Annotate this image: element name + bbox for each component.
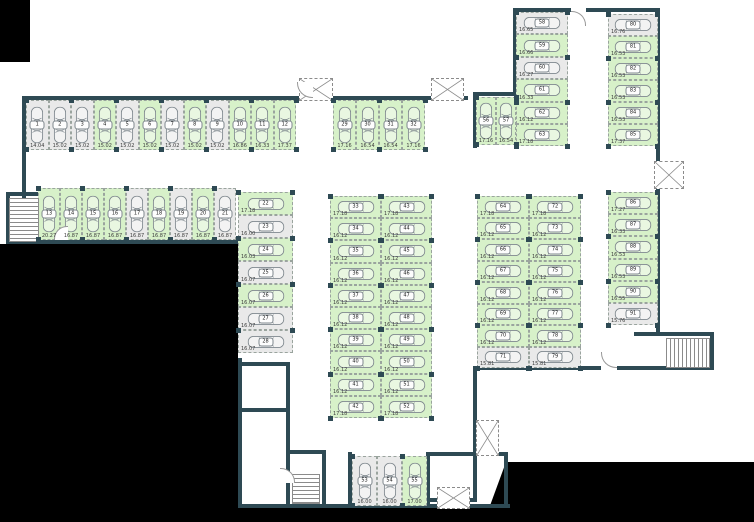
parking-space-25[interactable]: 25 16.07 (238, 261, 293, 284)
space-area: 16.12 (333, 278, 347, 284)
space-area: 16.12 (532, 318, 546, 324)
space-number: 76 (548, 288, 563, 297)
column-pillar (159, 147, 164, 152)
space-number: 62 (535, 108, 550, 117)
column-pillar (400, 454, 405, 459)
space-number: 80 (626, 21, 641, 30)
parking-space-72[interactable]: 72 17.18 (529, 196, 581, 218)
space-area: 16.12 (519, 117, 533, 123)
parking-space-47[interactable]: 47 16.12 (381, 285, 432, 307)
space-area: 15.02 (162, 143, 183, 149)
parking-space-2[interactable]: 2 15.02 (49, 100, 72, 150)
parking-space-71[interactable]: 71 15.81 (477, 347, 529, 369)
parking-space-52[interactable]: 52 17.18 (381, 396, 432, 418)
parking-space-37[interactable]: 37 16.12 (330, 285, 381, 307)
parking-space-87[interactable]: 87 16.33 (608, 214, 658, 236)
space-number: 9 (210, 121, 225, 130)
parking-space-83[interactable]: 83 16.53 (608, 80, 658, 102)
space-number: 51 (399, 380, 414, 389)
space-number: 27 (258, 314, 273, 323)
space-area: 16.00 (353, 499, 376, 505)
wall (586, 8, 660, 12)
door-arc (280, 468, 295, 483)
column-pillar (377, 147, 382, 152)
space-number: 6 (142, 121, 157, 130)
door-arc (571, 11, 586, 26)
space-area: 17.16 (334, 143, 355, 149)
column-pillar (474, 142, 479, 147)
void-area (484, 462, 754, 522)
parking-space-38[interactable]: 38 16.12 (330, 307, 381, 329)
space-number: 15 (86, 210, 101, 219)
space-number: 32 (406, 121, 421, 130)
space-area: 17.18 (384, 211, 398, 217)
parking-space-35[interactable]: 35 16.12 (330, 240, 381, 262)
space-area: 16.53 (611, 117, 625, 123)
space-area: 16.12 (333, 344, 347, 350)
column-pillar (212, 186, 217, 191)
parking-space-1[interactable]: 1 14.04 (26, 100, 49, 150)
space-number: 18 (152, 210, 167, 219)
space-number: 66 (496, 245, 511, 254)
parking-space-20[interactable]: 20 16.87 (192, 188, 214, 240)
space-area: 16.12 (384, 233, 398, 239)
space-number: 46 (399, 269, 414, 278)
parking-space-31[interactable]: 31 16.54 (379, 100, 402, 150)
parking-space-22[interactable]: 22 17.18 (238, 192, 293, 215)
parking-space-89[interactable]: 89 16.53 (608, 259, 658, 281)
space-number: 20 (196, 210, 211, 219)
space-area: 16.12 (532, 254, 546, 260)
space-number: 33 (348, 203, 363, 212)
space-number: 23 (258, 222, 273, 231)
parking-space-4[interactable]: 4 15.02 (94, 100, 117, 150)
space-area: 16.87 (83, 233, 103, 239)
column-pillar (69, 147, 74, 152)
column-pillar (328, 372, 333, 377)
parking-space-78[interactable]: 78 16.12 (529, 325, 581, 347)
column-pillar (36, 186, 41, 191)
space-number: 65 (496, 224, 511, 233)
space-number: 58 (535, 19, 550, 28)
column-pillar (379, 238, 384, 243)
space-number: 70 (496, 331, 511, 340)
column-pillar (429, 327, 434, 332)
parking-space-28[interactable]: 28 16.07 (238, 330, 293, 353)
space-area: 16.53 (611, 51, 625, 57)
stairs-icon (666, 338, 710, 368)
space-area: 17.18 (384, 411, 398, 417)
parking-space-49[interactable]: 49 16.12 (381, 329, 432, 351)
parking-space-12[interactable]: 12 17.37 (274, 100, 297, 150)
column-pillar (159, 98, 164, 103)
space-number: 48 (399, 314, 414, 323)
column-pillar (290, 236, 295, 241)
column-pillar (377, 98, 382, 103)
parking-space-46[interactable]: 46 16.12 (381, 263, 432, 285)
column-pillar (475, 280, 480, 285)
space-number: 50 (399, 358, 414, 367)
space-number: 87 (626, 221, 641, 230)
space-area: 16.27 (519, 72, 533, 78)
parking-space-36[interactable]: 36 16.12 (330, 263, 381, 285)
column-pillar (124, 237, 129, 242)
column-pillar (429, 194, 434, 199)
space-area: 16.87 (171, 233, 191, 239)
column-pillar (204, 147, 209, 152)
space-area: 16.12 (333, 256, 347, 262)
door-arc (601, 352, 617, 368)
space-area: 16.54 (497, 138, 515, 144)
parking-space-41[interactable]: 41 16.12 (330, 374, 381, 396)
space-number: 82 (626, 65, 641, 74)
parking-space-14[interactable]: 14 16.87 (60, 188, 82, 240)
column-pillar (236, 190, 241, 195)
parking-space-53[interactable]: 53 16.00 (352, 456, 377, 506)
column-pillar (331, 147, 336, 152)
shaft-symbol (476, 420, 499, 456)
space-area: 16.12 (532, 340, 546, 346)
space-area: 15.02 (140, 143, 161, 149)
space-area: 17.16 (477, 138, 495, 144)
column-pillar (236, 236, 241, 241)
parking-space-84[interactable]: 84 16.53 (608, 102, 658, 124)
column-pillar (578, 280, 583, 285)
column-pillar (606, 12, 611, 17)
parking-space-32[interactable]: 32 17.16 (402, 100, 425, 150)
parking-space-79[interactable]: 79 15.81 (529, 347, 581, 369)
space-number: 41 (348, 380, 363, 389)
column-pillar (527, 366, 532, 371)
column-pillar (379, 194, 384, 199)
column-pillar (168, 237, 173, 242)
column-pillar (124, 186, 129, 191)
space-area: 16.54 (380, 143, 401, 149)
parking-space-62[interactable]: 62 16.12 (516, 102, 568, 124)
space-area: 14.04 (27, 143, 48, 149)
column-pillar (290, 282, 295, 287)
space-area: 16.76 (611, 29, 625, 35)
parking-space-17[interactable]: 17 16.87 (126, 188, 148, 240)
column-pillar (249, 98, 254, 103)
parking-space-81[interactable]: 81 16.53 (608, 36, 658, 58)
column-pillar (69, 98, 74, 103)
space-number: 45 (399, 247, 414, 256)
space-number: 59 (535, 41, 550, 50)
column-pillar (527, 280, 532, 285)
space-area: 16.12 (333, 322, 347, 328)
wall (504, 452, 508, 506)
space-number: 22 (258, 199, 273, 208)
space-area: 17.16 (403, 143, 424, 149)
parking-space-51[interactable]: 51 16.12 (381, 374, 432, 396)
parking-space-80[interactable]: 80 16.76 (608, 14, 658, 36)
parking-space-43[interactable]: 43 17.18 (381, 196, 432, 218)
parking-space-7[interactable]: 7 15.02 (161, 100, 184, 150)
parking-space-61[interactable]: 61 16.33 (516, 79, 568, 101)
space-area: 16.12 (384, 389, 398, 395)
parking-space-5[interactable]: 5 15.02 (116, 100, 139, 150)
space-number: 71 (496, 353, 511, 362)
column-pillar (236, 282, 241, 287)
parking-space-42[interactable]: 42 17.18 (330, 396, 381, 418)
column-pillar (655, 100, 660, 105)
space-number: 28 (258, 337, 273, 346)
space-number: 19 (174, 210, 189, 219)
parking-space-39[interactable]: 39 16.12 (330, 329, 381, 351)
parking-space-27[interactable]: 27 16.07 (238, 307, 293, 330)
parking-space-19[interactable]: 19 16.87 (170, 188, 192, 240)
parking-space-66[interactable]: 66 16.12 (477, 239, 529, 261)
space-area: 16.87 (61, 233, 81, 239)
parking-space-6[interactable]: 6 15.02 (139, 100, 162, 150)
space-area: 16.07 (241, 277, 255, 283)
floor-plan: 1 14.04 2 15.02 3 15.02 4 15.02 5 15.02 … (0, 0, 754, 522)
space-area: 16.00 (241, 231, 255, 237)
wall (583, 366, 601, 370)
parking-space-90[interactable]: 90 16.55 (608, 281, 658, 303)
parking-space-15[interactable]: 15 16.87 (82, 188, 104, 240)
space-number: 30 (360, 121, 375, 130)
space-number: 47 (399, 291, 414, 300)
space-area: 16.87 (215, 233, 235, 239)
space-number: 69 (496, 310, 511, 319)
parking-space-68[interactable]: 68 16.12 (477, 282, 529, 304)
space-number: 26 (258, 291, 273, 300)
parking-space-75[interactable]: 75 16.12 (529, 261, 581, 283)
column-pillar (565, 100, 570, 105)
space-number: 7 (165, 121, 180, 130)
column-pillar (294, 147, 299, 152)
parking-space-56[interactable]: 56 17.16 (476, 97, 496, 145)
parking-space-45[interactable]: 45 16.12 (381, 240, 432, 262)
column-pillar (114, 147, 119, 152)
stairs-icon (9, 198, 39, 242)
space-number: 81 (626, 43, 641, 52)
space-number: 64 (496, 202, 511, 211)
column-pillar (474, 95, 479, 100)
parking-space-3[interactable]: 3 15.02 (71, 100, 94, 150)
column-pillar (514, 100, 519, 105)
space-number: 24 (258, 245, 273, 254)
shaft-symbol (431, 78, 464, 101)
column-pillar (514, 55, 519, 60)
space-area: 15.81 (480, 361, 494, 367)
parking-space-48[interactable]: 48 16.12 (381, 307, 432, 329)
parking-space-85[interactable]: 85 17.37 (608, 124, 658, 146)
space-area: 16.54 (357, 143, 378, 149)
column-pillar (527, 237, 532, 242)
column-pillar (328, 416, 333, 421)
column-pillar (514, 10, 519, 15)
parking-space-73[interactable]: 73 16.12 (529, 218, 581, 240)
parking-space-60[interactable]: 60 16.27 (516, 57, 568, 79)
parking-space-10[interactable]: 10 16.86 (229, 100, 252, 150)
parking-space-69[interactable]: 69 16.12 (477, 304, 529, 326)
space-number: 75 (548, 267, 563, 276)
parking-space-18[interactable]: 18 16.87 (148, 188, 170, 240)
parking-space-88[interactable]: 88 16.53 (608, 236, 658, 258)
parking-space-30[interactable]: 30 16.54 (356, 100, 379, 150)
column-pillar (578, 323, 583, 328)
space-number: 89 (626, 265, 641, 274)
column-pillar (655, 56, 660, 61)
parking-space-50[interactable]: 50 16.12 (381, 351, 432, 373)
space-number: 2 (52, 121, 67, 130)
space-area: 15.76 (611, 318, 625, 324)
column-pillar (331, 98, 336, 103)
parking-space-59[interactable]: 59 16.66 (516, 34, 568, 56)
parking-space-77[interactable]: 77 16.12 (529, 304, 581, 326)
space-area: 16.03 (241, 254, 255, 260)
space-number: 54 (382, 477, 397, 486)
space-area: 17.18 (333, 211, 347, 217)
parking-space-91[interactable]: 91 15.76 (608, 303, 658, 325)
parking-space-11[interactable]: 11 16.33 (251, 100, 274, 150)
space-number: 5 (120, 121, 135, 130)
space-area: 16.00 (378, 499, 401, 505)
column-pillar (606, 234, 611, 239)
column-pillar (606, 144, 611, 149)
space-number: 16 (108, 210, 123, 219)
column-pillar (423, 98, 428, 103)
space-number: 57 (499, 117, 514, 126)
space-area: 16.53 (611, 252, 625, 258)
space-area: 16.87 (127, 233, 147, 239)
space-number: 61 (535, 86, 550, 95)
stairs-icon (292, 474, 320, 504)
space-number: 49 (399, 336, 414, 345)
parking-space-29[interactable]: 29 17.16 (333, 100, 356, 150)
column-pillar (290, 328, 295, 333)
parking-space-33[interactable]: 33 17.18 (330, 196, 381, 218)
space-number: 14 (64, 210, 79, 219)
parking-space-67[interactable]: 67 16.12 (477, 261, 529, 283)
parking-space-54[interactable]: 54 16.00 (377, 456, 402, 506)
parking-space-40[interactable]: 40 16.12 (330, 351, 381, 373)
space-number: 79 (548, 353, 563, 362)
space-area: 17.27 (611, 207, 625, 213)
parking-space-76[interactable]: 76 16.12 (529, 282, 581, 304)
space-area: 16.07 (241, 300, 255, 306)
space-area: 16.12 (333, 367, 347, 373)
parking-space-34[interactable]: 34 16.12 (330, 218, 381, 240)
column-pillar (400, 503, 405, 508)
space-area: 15.02 (207, 143, 228, 149)
space-number: 11 (255, 121, 270, 130)
parking-space-58[interactable]: 58 16.65 (516, 12, 568, 34)
parking-space-23[interactable]: 23 16.00 (238, 215, 293, 238)
parking-space-8[interactable]: 8 15.02 (184, 100, 207, 150)
parking-space-16[interactable]: 16 16.87 (104, 188, 126, 240)
space-number: 21 (218, 210, 233, 219)
space-number: 29 (337, 121, 352, 130)
parking-space-57[interactable]: 57 16.54 (496, 97, 516, 145)
space-area: 16.12 (384, 300, 398, 306)
wall (238, 358, 242, 508)
parking-space-65[interactable]: 65 16.12 (477, 218, 529, 240)
column-pillar (24, 98, 29, 103)
column-pillar (80, 186, 85, 191)
parking-space-13[interactable]: 13 20.27 (38, 188, 60, 240)
space-number: 8 (187, 121, 202, 130)
space-number: 88 (626, 243, 641, 252)
space-area: 16.12 (333, 389, 347, 395)
space-number: 38 (348, 314, 363, 323)
parking-space-63[interactable]: 63 17.18 (516, 124, 568, 146)
space-number: 83 (626, 87, 641, 96)
parking-space-24[interactable]: 24 16.03 (238, 238, 293, 261)
space-number: 34 (348, 225, 363, 234)
column-pillar (475, 323, 480, 328)
space-area: 15.02 (72, 143, 93, 149)
parking-space-21[interactable]: 21 16.87 (214, 188, 236, 240)
parking-space-70[interactable]: 70 16.12 (477, 325, 529, 347)
space-area: 17.18 (333, 411, 347, 417)
column-pillar (379, 416, 384, 421)
column-pillar (379, 372, 384, 377)
space-area: 16.12 (532, 275, 546, 281)
space-area: 16.12 (384, 256, 398, 262)
space-area: 17.37 (275, 143, 296, 149)
space-number: 43 (399, 203, 414, 212)
space-number: 74 (548, 245, 563, 254)
void-area (0, 244, 238, 522)
space-number: 35 (348, 247, 363, 256)
space-number: 10 (232, 121, 247, 130)
column-pillar (328, 238, 333, 243)
column-pillar (655, 323, 660, 328)
space-area: 16.33 (252, 143, 273, 149)
space-number: 73 (548, 224, 563, 233)
column-pillar (578, 237, 583, 242)
parking-space-82[interactable]: 82 16.53 (608, 58, 658, 80)
parking-space-26[interactable]: 26 16.07 (238, 284, 293, 307)
column-pillar (379, 283, 384, 288)
parking-space-55[interactable]: 55 17.00 (402, 456, 427, 506)
column-pillar (328, 327, 333, 332)
parking-space-86[interactable]: 86 17.27 (608, 192, 658, 214)
space-number: 86 (626, 199, 641, 208)
parking-space-74[interactable]: 74 16.12 (529, 239, 581, 261)
space-area: 16.12 (384, 344, 398, 350)
space-area: 16.07 (241, 323, 255, 329)
parking-space-9[interactable]: 9 15.02 (206, 100, 229, 150)
space-area: 16.66 (519, 50, 533, 56)
space-area: 17.00 (403, 499, 426, 505)
space-area: 16.12 (384, 278, 398, 284)
space-number: 53 (357, 477, 372, 486)
column-pillar (114, 98, 119, 103)
parking-space-64[interactable]: 64 17.18 (477, 196, 529, 218)
wall (286, 450, 324, 454)
column-pillar (429, 416, 434, 421)
column-pillar (236, 328, 241, 333)
space-number: 91 (626, 310, 641, 319)
space-number: 42 (348, 402, 363, 411)
void-area (238, 508, 510, 522)
space-area: 16.33 (519, 95, 533, 101)
column-pillar (475, 237, 480, 242)
space-area: 16.33 (611, 229, 625, 235)
column-pillar (527, 323, 532, 328)
column-pillar (606, 56, 611, 61)
space-number: 55 (407, 477, 422, 486)
parking-space-44[interactable]: 44 16.12 (381, 218, 432, 240)
column-pillar (36, 237, 41, 242)
shaft-symbol (654, 161, 684, 189)
space-number: 63 (535, 131, 550, 140)
